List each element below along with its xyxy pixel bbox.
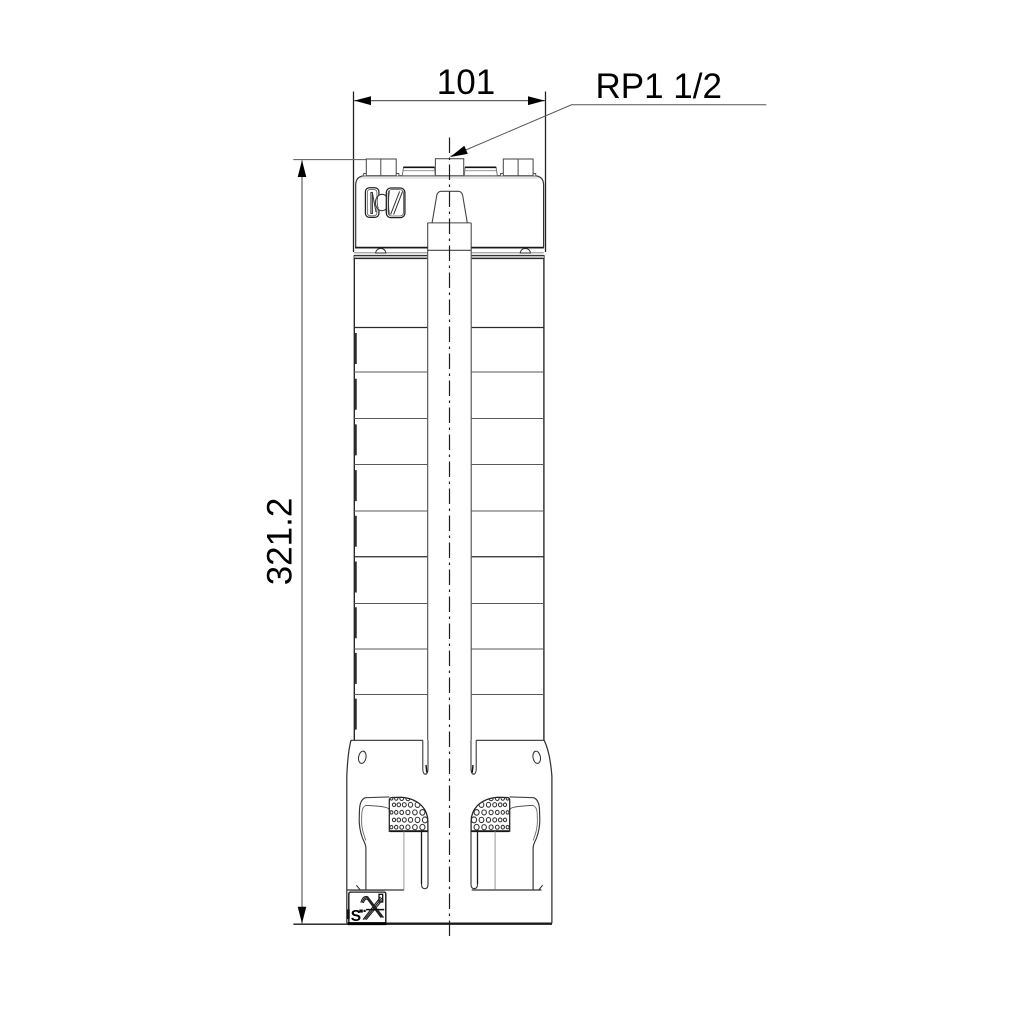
svg-text:321.2: 321.2 xyxy=(260,498,299,586)
svg-text:RP1 1/2: RP1 1/2 xyxy=(596,67,722,106)
svg-text:101: 101 xyxy=(437,63,495,102)
